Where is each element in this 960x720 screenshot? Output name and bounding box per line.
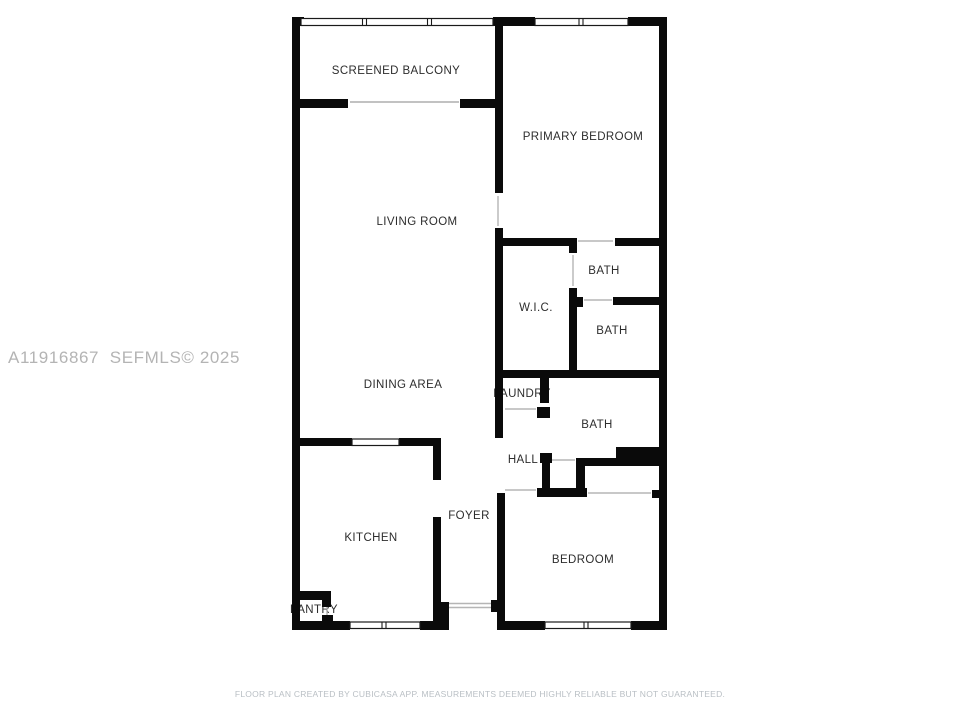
room-label-bath-upper: BATH bbox=[588, 265, 619, 277]
room-label-hall: HALL bbox=[508, 454, 538, 466]
room-label-screened-balcony: SCREENED BALCONY bbox=[332, 65, 460, 77]
room-label-kitchen: KITCHEN bbox=[344, 532, 397, 544]
room-label-dining-area: DINING AREA bbox=[364, 379, 443, 391]
room-label-pantry: PANTRY bbox=[290, 604, 338, 616]
room-label-laundry: LAUNDRY bbox=[493, 388, 551, 400]
room-label-primary-bedroom: PRIMARY BEDROOM bbox=[523, 131, 644, 143]
mls-watermark: A11916867 SEFMLS© 2025 bbox=[8, 348, 240, 368]
footer-disclaimer: FLOOR PLAN CREATED BY CUBICASA APP. MEAS… bbox=[0, 689, 960, 699]
room-label-wic: W.I.C. bbox=[519, 302, 553, 314]
floor-plan-page: SCREENED BALCONY PRIMARY BEDROOM LIVING … bbox=[0, 0, 960, 720]
room-label-bedroom: BEDROOM bbox=[552, 554, 614, 566]
room-label-living-room: LIVING ROOM bbox=[376, 216, 457, 228]
room-label-bath-lower: BATH bbox=[581, 419, 612, 431]
room-label-foyer: FOYER bbox=[448, 510, 490, 522]
room-label-bath-middle: BATH bbox=[596, 325, 627, 337]
